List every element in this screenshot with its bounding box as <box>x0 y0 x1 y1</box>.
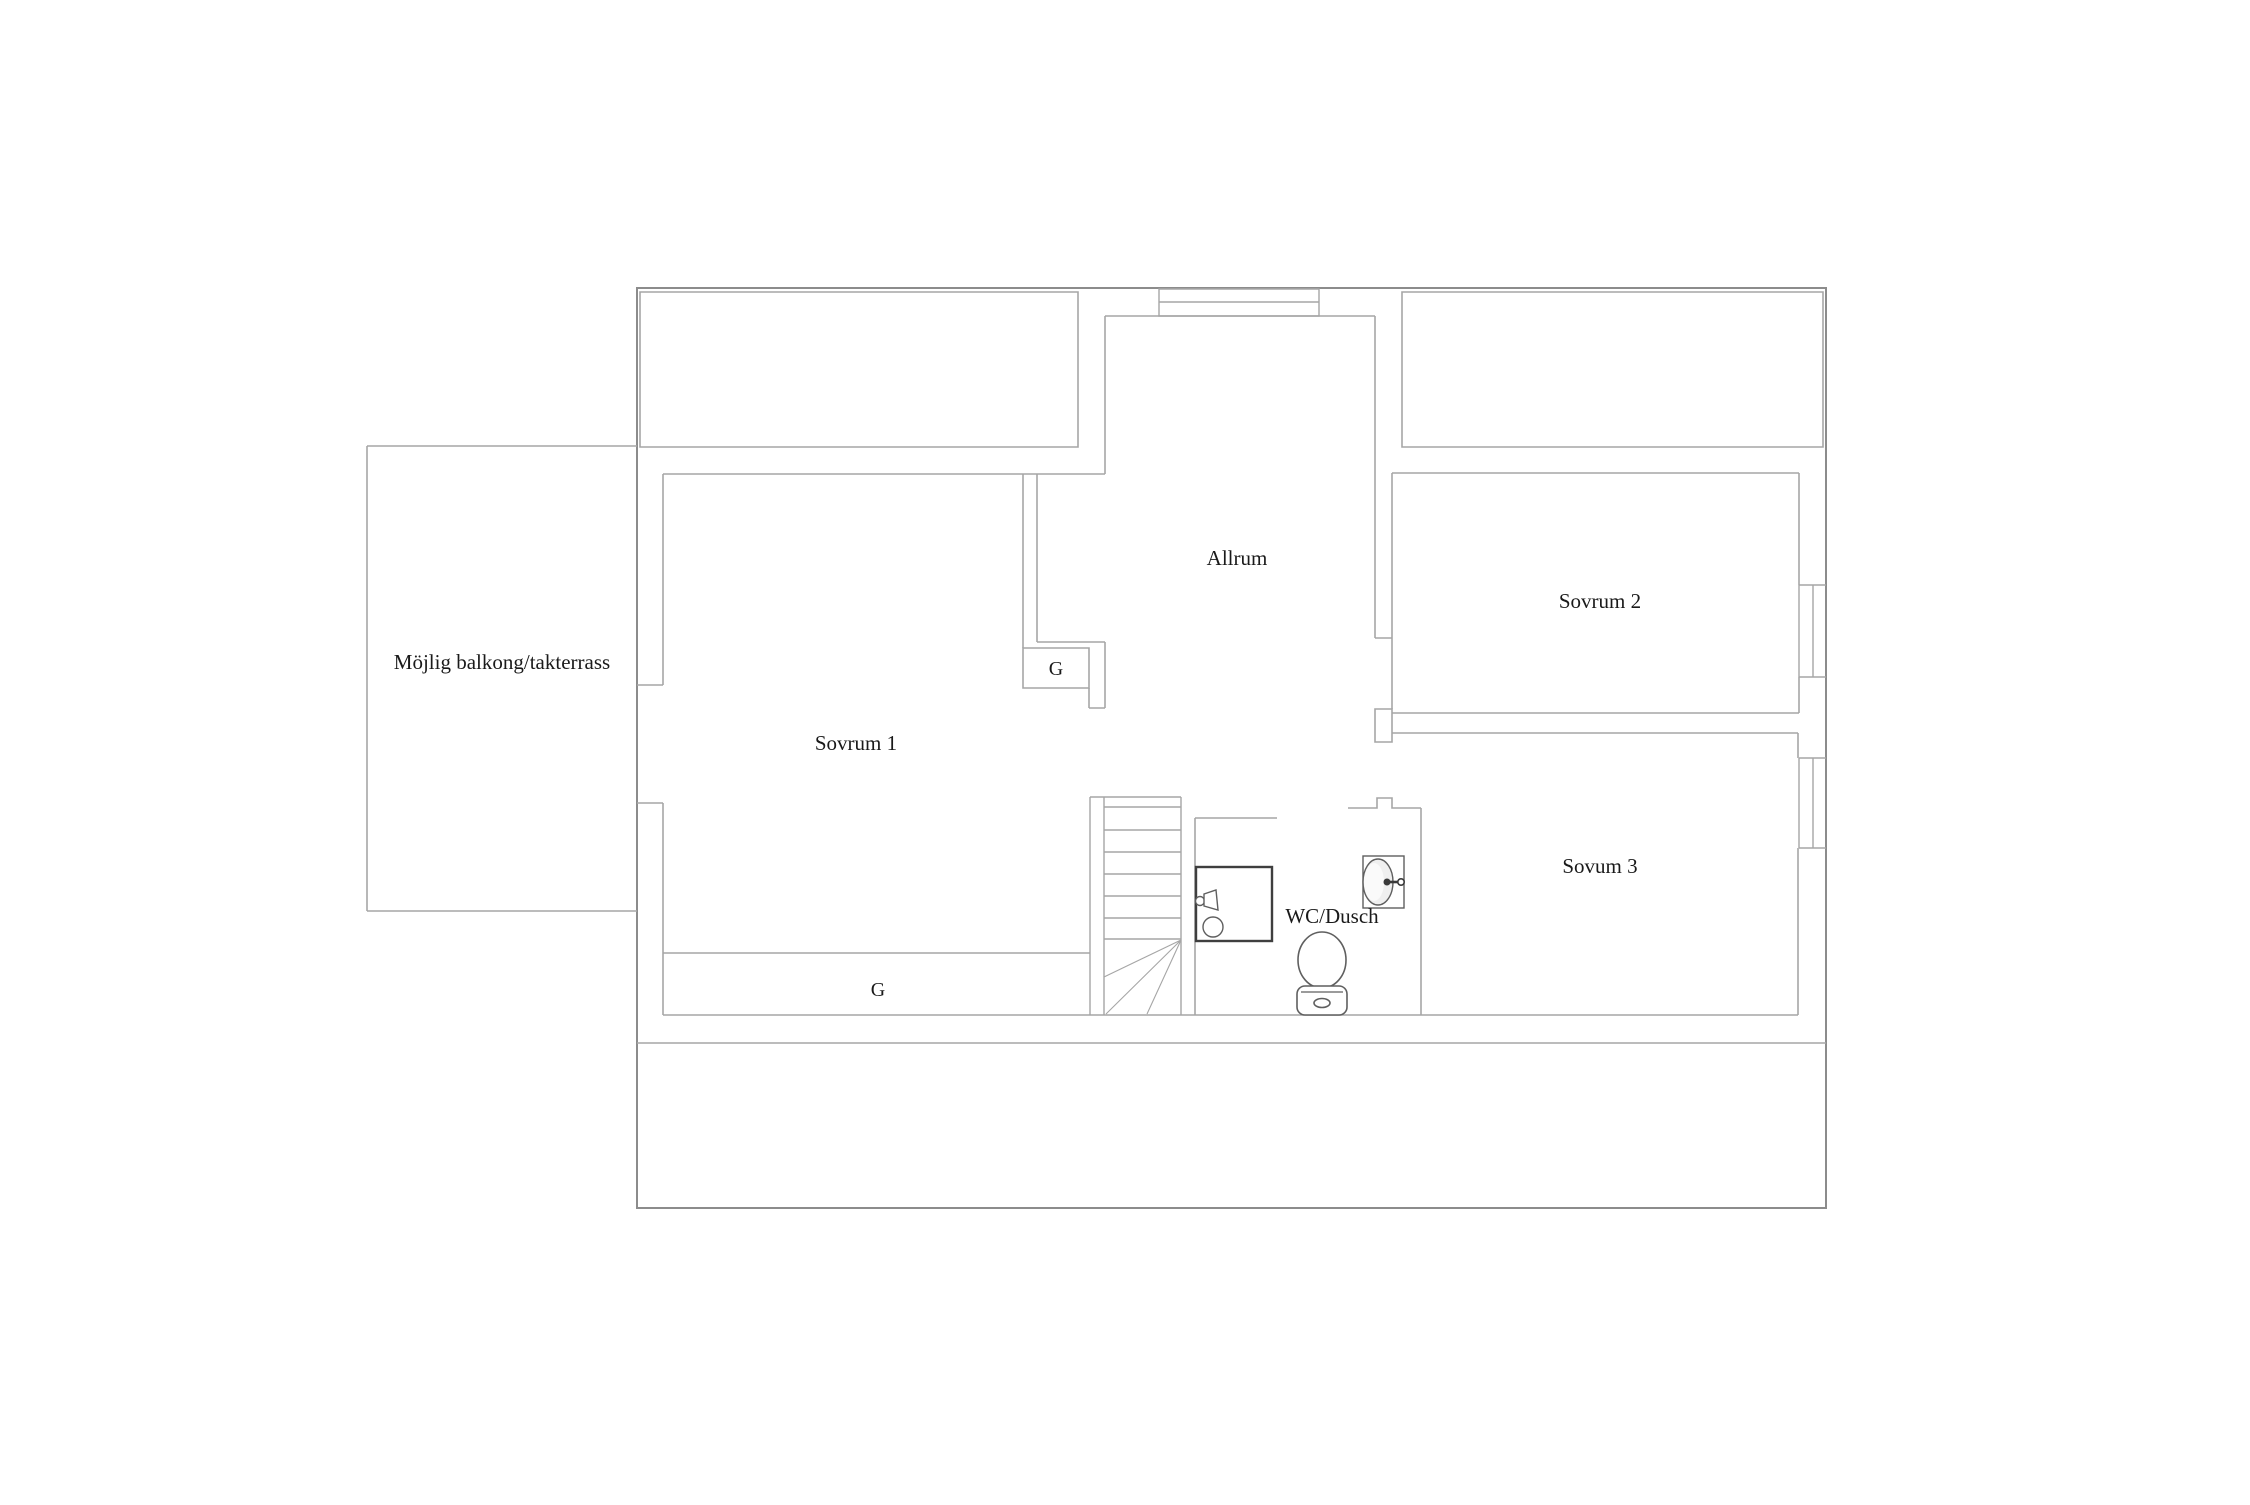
right-wall-window-lower-icon <box>1799 758 1826 848</box>
sink-icon <box>1363 856 1404 908</box>
closet-lower-label: G <box>871 979 885 1001</box>
shower-icon <box>1196 867 1273 941</box>
sovrum1-label: Sovrum 1 <box>815 731 897 755</box>
staircase-icon <box>1090 797 1181 1015</box>
balcony-label: Möjlig balkong/takterrass <box>394 650 610 674</box>
allrum-label: Allrum <box>1207 546 1268 570</box>
floor-plan: Möjlig balkong/takterrass Sovrum 1 Allru… <box>0 0 2250 1505</box>
right-wall-window-upper-icon <box>1799 585 1826 677</box>
sovum3-label: Sovum 3 <box>1562 854 1637 878</box>
toilet-icon <box>1297 932 1347 1015</box>
wc-dusch-label: WC/Dusch <box>1285 904 1379 928</box>
closet-upper-label: G <box>1049 658 1063 680</box>
balcony-outline <box>367 446 637 911</box>
top-wall-window-icon <box>1159 289 1319 316</box>
room-labels: Möjlig balkong/takterrass Sovrum 1 Allru… <box>394 546 1641 1001</box>
interior-walls <box>637 292 1826 1043</box>
sovrum2-label: Sovrum 2 <box>1559 589 1641 613</box>
